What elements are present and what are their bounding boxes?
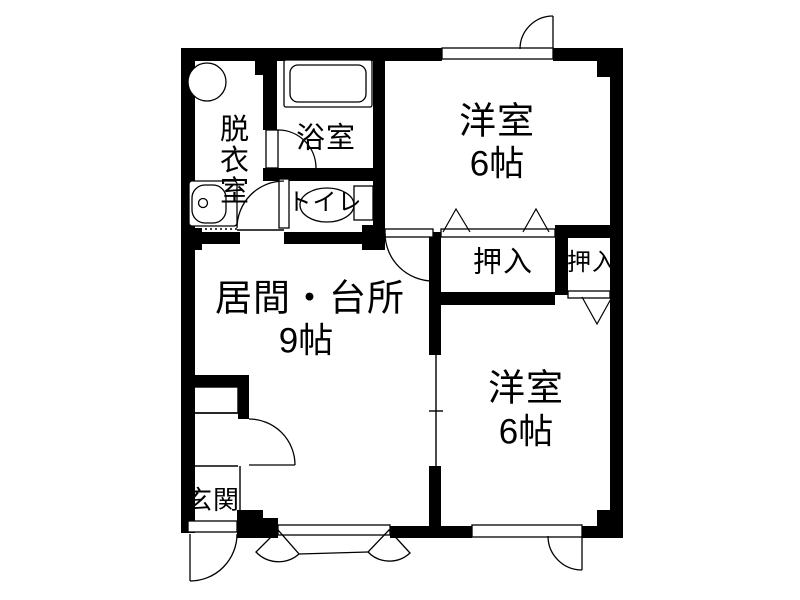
terrace-door-sill [278,525,390,535]
pillar-toilet-corner [362,225,385,250]
closet-large-sliding-front [441,229,555,237]
bath-door-panel [266,130,278,168]
wall-left [181,48,195,533]
bedroom-door-head [385,229,433,237]
room-label-dressing: 脱衣室 [217,114,246,207]
pillar-entry-step [237,510,263,538]
wall-top-left [181,48,442,61]
entrance-door-sill [188,521,237,532]
bottom-window-swing-arc [548,536,582,570]
wall-closet-south [429,292,555,305]
pillar-left-junction [181,228,202,250]
room-label-living-kitchen: 居間・台所 [215,280,405,317]
wall-entry-closet-east [238,375,249,419]
entrance-door-arc [190,534,237,581]
room-label-closet-small: 押入 [567,251,617,275]
wall-toilet-south [284,232,362,244]
wall-partition-lower [429,466,441,538]
room-label-western-bottom: 洋室 [488,370,564,407]
closet-small-front [568,291,610,298]
wall-bottom-c [582,526,612,538]
wall-bath-east [373,48,385,232]
floorplan: 脱衣室 浴室 トイレ 洋室 6帖 押入 押入 居間・台所 9帖 洋室 6帖 玄関 [0,0,800,600]
pillar-entry-step-ext [263,518,278,538]
room-size-western-bottom: 6帖 [499,415,553,450]
room-size-western-top: 6帖 [470,147,524,182]
room-label-western-top: 洋室 [459,103,535,140]
closet-small-marker [582,297,612,324]
terrace-door-connector [299,552,368,554]
wall-bath-west [263,58,277,130]
bathtub-inner-icon [290,65,366,102]
wall-entry-closet-north [181,375,247,387]
bedroom-top-door-arc [385,233,433,281]
entry-shoe-cabinet [188,387,238,413]
room-label-closet-large: 押入 [473,249,533,278]
room-label-bath: 浴室 [296,125,356,154]
sink-drain-icon [199,199,208,208]
top-window-swing-arc [520,16,553,49]
wall-right [610,48,623,538]
entry-closet-door-arc [249,419,295,465]
wall-closet-small-north [555,225,623,238]
room-size-living-kitchen: 9帖 [279,324,333,359]
window-top [442,48,553,59]
room-label-entrance: 玄関 [186,487,240,513]
window-bottom [472,525,582,537]
washing-machine-icon [188,63,226,101]
room-label-toilet: トイレ [288,191,363,215]
